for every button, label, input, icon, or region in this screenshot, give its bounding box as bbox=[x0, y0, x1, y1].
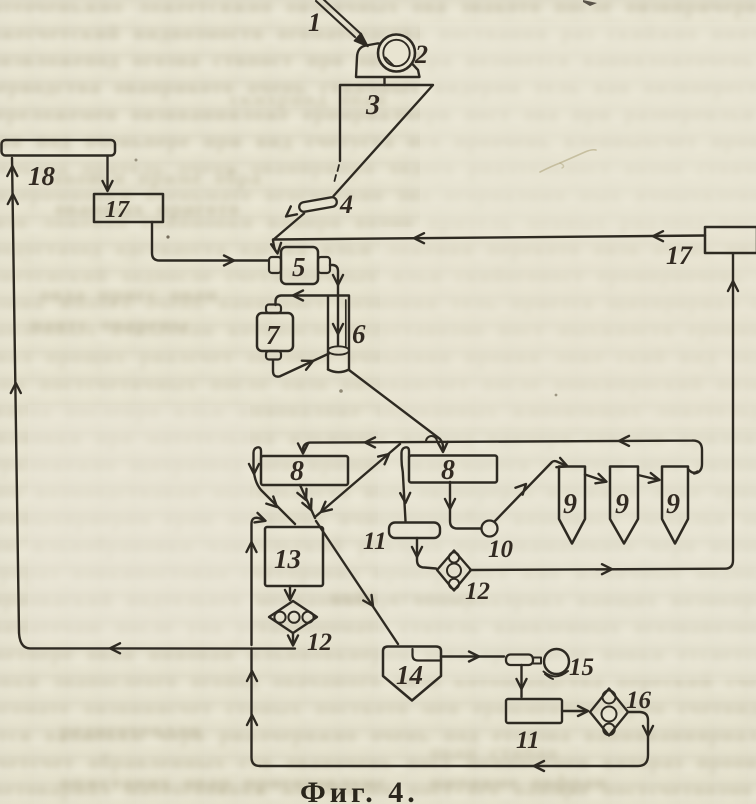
svg-text:10: 10 bbox=[488, 536, 514, 563]
svg-text:8: 8 bbox=[290, 456, 304, 487]
svg-text:11: 11 bbox=[516, 727, 540, 754]
svg-text:4: 4 bbox=[339, 190, 353, 219]
svg-text:9: 9 bbox=[615, 489, 629, 520]
svg-text:Фиг. 4.: Фиг. 4. bbox=[300, 776, 419, 804]
svg-text:14: 14 bbox=[396, 660, 423, 690]
svg-text:1: 1 bbox=[308, 8, 321, 37]
svg-text:13: 13 bbox=[274, 544, 301, 574]
svg-text:5: 5 bbox=[292, 252, 306, 282]
svg-text:8: 8 bbox=[441, 455, 455, 486]
svg-text:6: 6 bbox=[352, 319, 366, 349]
svg-text:17: 17 bbox=[666, 241, 693, 270]
svg-text:11: 11 bbox=[363, 528, 387, 555]
svg-text:7: 7 bbox=[266, 320, 281, 350]
svg-text:2: 2 bbox=[414, 40, 428, 69]
svg-text:15: 15 bbox=[569, 654, 594, 681]
svg-text:12: 12 bbox=[307, 629, 332, 656]
svg-text:16: 16 bbox=[626, 687, 652, 714]
svg-text:17: 17 bbox=[105, 197, 130, 223]
svg-text:9: 9 bbox=[666, 489, 680, 520]
svg-text:12: 12 bbox=[465, 578, 490, 605]
svg-text:18: 18 bbox=[28, 161, 56, 191]
svg-text:3: 3 bbox=[365, 90, 380, 121]
svg-text:9: 9 bbox=[563, 489, 577, 520]
